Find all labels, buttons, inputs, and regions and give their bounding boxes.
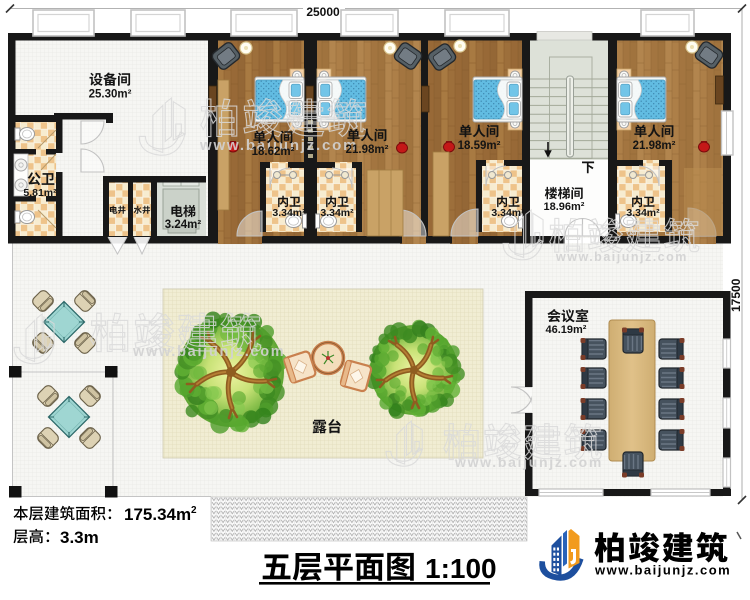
svg-text:3.24m²: 3.24m² (165, 219, 202, 231)
svg-text:3.34m²: 3.34m² (320, 207, 354, 219)
svg-text:25.30m²: 25.30m² (89, 89, 132, 101)
svg-text:3.34m²: 3.34m² (272, 207, 306, 219)
svg-text:18.96m²: 18.96m² (544, 201, 585, 213)
svg-text:175.34m: 175.34m (124, 505, 191, 524)
svg-text:www.baijunjz.com: www.baijunjz.com (454, 454, 603, 470)
svg-text:2: 2 (191, 505, 197, 516)
svg-text:46.19m²: 46.19m² (546, 324, 587, 336)
svg-text:3.34m²: 3.34m² (626, 207, 660, 219)
svg-text:21.98m²: 21.98m² (633, 140, 676, 152)
svg-text:21.98m²: 21.98m² (346, 144, 389, 156)
svg-text:www.baijunjz.com: www.baijunjz.com (594, 563, 731, 578)
svg-text:1:100: 1:100 (425, 553, 497, 584)
svg-text:3.3m: 3.3m (60, 528, 99, 547)
svg-text:5.81m²: 5.81m² (23, 187, 57, 199)
svg-text:25000: 25000 (306, 5, 340, 19)
svg-text:www.baijunjz.com: www.baijunjz.com (132, 344, 285, 360)
svg-text:www.baijunjz.com: www.baijunjz.com (555, 250, 688, 264)
svg-text:18.59m²: 18.59m² (458, 140, 501, 152)
svg-text:17500: 17500 (729, 278, 743, 312)
svg-text:3.34m²: 3.34m² (491, 207, 525, 219)
svg-text:18.62m²: 18.62m² (252, 146, 295, 158)
